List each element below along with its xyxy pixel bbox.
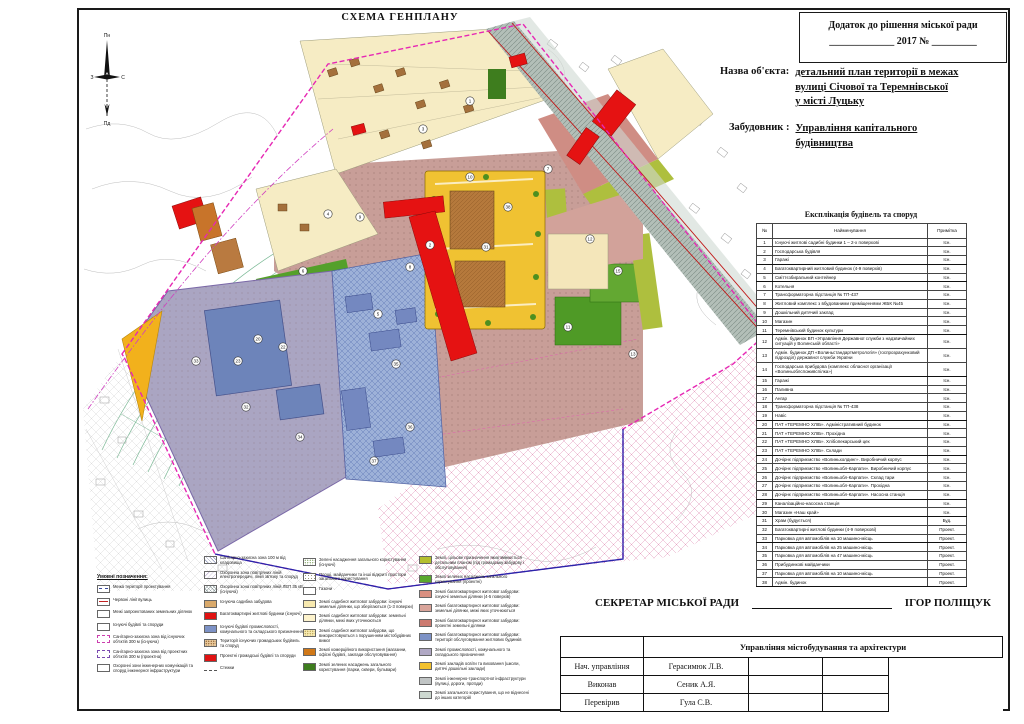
svg-text:13: 13	[630, 352, 636, 357]
explication-row: 37Парковка для автомобілів на 10 машино-…	[757, 569, 967, 578]
explication-row: 4Багатоквартирний житловий будинок (4-9 …	[757, 264, 967, 273]
explication-row: 10МагазинІсн.	[757, 317, 967, 326]
legend-swatch-dots-grn	[303, 558, 316, 566]
legend-swatch-olive	[419, 556, 432, 564]
explication-row: 29Каналізаційно-насосна станціяІсн.	[757, 499, 967, 508]
explication-row: 12Адмін. будинок ВП «Управління Державно…	[757, 335, 967, 349]
secretary-signature-row: СЕКРЕТАР МІСЬКОЇ РАДИ ІГОР ПОЛІЩУК	[595, 596, 991, 609]
legend-label: Площі, майданчики та інші відкриті прост…	[319, 573, 417, 583]
legend-label: Землі зелених насаджень загального корис…	[435, 575, 529, 585]
legend-label: Газони	[319, 587, 332, 592]
legend-label: Землі садибної житлової забудови, що вик…	[319, 629, 417, 644]
stamp-role: Нач. управління	[561, 658, 644, 676]
svg-text:20: 20	[255, 337, 261, 342]
legend-swatch-tan-dots	[204, 639, 217, 647]
legend-label: Землі, цільове призначення яких змінюєть…	[435, 556, 529, 571]
legend-label: Землі багатоквартирної житлової забудови…	[435, 604, 529, 614]
legend-label: Санітарно-захисна зона 100 м від кладови…	[220, 556, 303, 566]
explication-row: 14Господарська прибудова (комплекс облас…	[757, 362, 967, 376]
stamp-empty	[823, 694, 889, 712]
legend-label: Землі багатоквартирної житлової забудови…	[435, 619, 529, 629]
stamp-empty	[749, 676, 823, 694]
explication-row: 32Багатоквартирні житлові будинки (4-9 п…	[757, 525, 967, 534]
stamp-person-name: Герасимюк Л.В.	[644, 658, 749, 676]
legend-swatch-green	[419, 575, 432, 583]
legend-swatch-hx	[204, 556, 217, 564]
svg-text:35: 35	[393, 362, 399, 367]
legend-label: Червоні лінії вулиць	[113, 598, 152, 603]
legend-swatch-hx2	[204, 585, 217, 593]
legend-item: Землі комерційного використання (магазин…	[303, 648, 417, 658]
explication-title: Експлікація будівель та споруд	[754, 210, 968, 219]
svg-text:15: 15	[615, 269, 621, 274]
legend-swatch-line-red	[97, 598, 110, 606]
legend-label: Багатоквартирні житлові будинки (існуючі…	[220, 612, 302, 617]
explication-row: 23ПАТ «ТЕРЕМНО ХЛІБ». СкладиІсн.	[757, 446, 967, 455]
legend-item: Санітарно-захисна зона від існуючих об'є…	[97, 635, 200, 645]
explication-header-row: № Найменування Примітка	[757, 224, 967, 239]
legend-label: Території існуючих громадських будівель …	[220, 639, 303, 649]
svg-text:31: 31	[483, 245, 489, 250]
svg-text:22: 22	[280, 345, 286, 350]
explication-row: 8Житловий комплекс з вбудованими приміще…	[757, 299, 967, 308]
legend-swatch-lav	[419, 648, 432, 656]
annex-line-1: Додаток до рішення міської ради	[800, 18, 1006, 34]
explication-row: 5Сміттєзбиральний контейнерІсн.	[757, 273, 967, 282]
explication-row: 25Дочірнє підприємство «Волиньобл-Карпат…	[757, 464, 967, 473]
legend-label: Охоронна зона повітряних ліній електропе…	[220, 571, 303, 581]
compass-south-label: Пд	[104, 121, 111, 126]
stamp-person-name: Сеник А.Я.	[644, 676, 749, 694]
legend-column-3: Зелені насадження загального користуванн…	[303, 558, 417, 677]
stamp-row: Нач. управлінняГерасимюк Л.В.	[561, 658, 1003, 676]
compass-north-label: Пн	[104, 33, 111, 39]
explication-row: 28Дочірнє підприємство «Волиньобл-Карпат…	[757, 490, 967, 499]
legend-swatch-gray	[419, 677, 432, 685]
svg-text:10: 10	[467, 175, 473, 180]
legend-item: Землі промисловості, комунального та скл…	[419, 648, 529, 658]
stamp-role: Перевірив	[561, 694, 644, 712]
legend-item: Проектні громадські будівлі та споруди	[204, 654, 303, 662]
legend-label: Землі комерційного використання (магазин…	[319, 648, 417, 658]
developer-value: Управління капітальногобудівництва	[795, 122, 917, 151]
legend-label: Межа території проектування	[113, 585, 170, 590]
legend-item: Зелені насадження загального користуванн…	[303, 558, 417, 568]
legend-label: Охоронна зона повітряних ліній ЛЕП 35 кВ…	[220, 585, 303, 595]
explication-row: 6КотельняІсн.	[757, 282, 967, 291]
legend-swatch-white	[303, 587, 316, 595]
legend-label: Землі багатоквартирної житлової забудови…	[435, 590, 529, 600]
legend-label: Землі садибної житлової забудови: земель…	[319, 614, 417, 624]
explication-row: 21ПАТ «ТЕРЕМНО ХЛІБ». ПрохіднаІсн.	[757, 429, 967, 438]
explication-row: 13Адмін. будинок ДП «Волиньстандартметро…	[757, 348, 967, 362]
legend-item: Землі зелених насаджень загального корис…	[419, 575, 529, 585]
object-name-block: Назва об'єкта: детальний план території …	[720, 66, 1010, 110]
legend-item: Червоні лінії вулиць	[97, 598, 200, 606]
legend-swatch-salmon	[419, 590, 432, 598]
legend-swatch-line-blue	[97, 585, 110, 593]
stamp-empty	[823, 658, 889, 676]
svg-text:23: 23	[235, 359, 241, 364]
legend-label: Існуючі будівлі та споруди	[113, 623, 163, 628]
legend-label: Землі зелених насаджень загального корис…	[319, 663, 417, 673]
legend-item: Межі запроектованих земельних ділянок	[97, 610, 200, 618]
explication-row: 16ПаливнаІсн.	[757, 385, 967, 394]
legend-item: Площі, майданчики та інші відкриті прост…	[303, 573, 417, 583]
legend-swatch-gold	[419, 662, 432, 670]
legend-swatch-white	[97, 610, 110, 618]
legend-item: Землі садибної житлової забудови, що вик…	[303, 629, 417, 644]
developer-label: Забудовник :	[729, 122, 789, 151]
svg-text:12: 12	[587, 237, 593, 242]
explication-col-note: Примітка	[928, 224, 967, 239]
legend-swatch-py2	[303, 614, 316, 622]
legend-item: Землі зелених насаджень загального корис…	[303, 663, 417, 673]
legend-item: Межа території проектування	[97, 585, 200, 593]
legend-swatch-dkgreen	[303, 663, 316, 671]
legend-item: Охоронна зона повітряних ліній ЛЕП 35 кВ…	[204, 585, 303, 595]
stamp-empty	[749, 658, 823, 676]
explication-row: 19НавісІсн.	[757, 411, 967, 420]
legend-item: Землі загального користування, що не від…	[419, 691, 529, 701]
explication-row: 9Дошкільний дитячий закладІсн.	[757, 308, 967, 317]
legend-label: Зелені насадження загального користуванн…	[319, 558, 417, 568]
explication-table: № Найменування Примітка 1Існуючі житлові…	[756, 223, 967, 587]
explication-row: 11Теремнівський будинок культуриІсн.	[757, 326, 967, 335]
legend-label: Охоронні зони інженерних комунікацій та …	[113, 664, 200, 674]
legend-label: Стежки	[220, 666, 234, 671]
legend-swatch-graygreen	[419, 691, 432, 699]
legend-item: Землі багатоквартирної житлової забудови…	[419, 619, 529, 629]
legend-label: Землі промисловості, комунального та скл…	[435, 648, 529, 658]
legend-label: Землі інженерно-транспортної інфраструкт…	[435, 677, 529, 687]
explication-row: 15ГаражіІсн.	[757, 376, 967, 385]
legend-label: Землі багатоквартирної житлової забудови…	[435, 633, 529, 643]
legend-swatch-py-dots	[303, 629, 316, 637]
explication-row: 38Адмін. будинокПроект.	[757, 578, 967, 587]
legend-swatch-dash-mag	[97, 635, 110, 643]
svg-text:32: 32	[243, 405, 249, 410]
svg-text:37: 37	[371, 459, 377, 464]
explication-row: 17АнгарІсн.	[757, 394, 967, 403]
legend-item: Охоронна зона повітряних ліній електропе…	[204, 571, 303, 581]
legend-item: Багатоквартирні житлові будинки (існуючі…	[204, 612, 303, 620]
legend-swatch-orange	[303, 648, 316, 656]
legend-swatch-dashes	[204, 666, 217, 674]
legend-item: Газони	[303, 587, 417, 595]
legend-swatch-py	[303, 600, 316, 608]
legend-item: Землі садибної житлової забудови: земель…	[303, 614, 417, 624]
legend-item: Санітарно-захисна зона від проектних об'…	[97, 650, 200, 660]
signature-line	[752, 596, 892, 609]
legend-swatch-pink	[419, 604, 432, 612]
legend-label: Існуюча садибна забудова	[220, 600, 272, 605]
legend-label: Землі загального користування, що не від…	[435, 691, 529, 701]
legend-swatch-white	[97, 623, 110, 631]
object-name-value: детальний план території в межахвулиці С…	[795, 66, 958, 110]
legend-column-4: Землі, цільове призначення яких змінюєть…	[419, 556, 529, 706]
explication-row: 18Трансформаторна підстанція № ТП-438Існ…	[757, 403, 967, 412]
legend-label: Межі запроектованих земельних ділянок	[113, 610, 192, 615]
explication-row: 27Дочірнє підприємство «Волиньобл-Карпат…	[757, 482, 967, 491]
legend-label: Землі садибної житлової забудови: існуюч…	[319, 600, 417, 610]
legend-column-2: Санітарно-захисна зона 100 м від кладови…	[204, 556, 303, 679]
legend-label: Проектні громадські будівлі та споруди	[220, 654, 296, 659]
legend-label: Землі закладів освіти та виховання (школ…	[435, 662, 529, 672]
legend-label: Санітарно-захисна зона від проектних об'…	[113, 650, 200, 660]
explication-row: 34Парковка для автомобілів на 25 машино-…	[757, 543, 967, 552]
explication-row: 30Магазин «Наш край»Існ.	[757, 508, 967, 517]
legend-label: Існуючі будівлі промисловості, комунальн…	[220, 625, 303, 635]
legend-swatch-tan	[204, 600, 217, 608]
explication-row: 35Парковка для автомобілів на 47 машино-…	[757, 552, 967, 561]
legend-swatch-blue	[419, 633, 432, 641]
svg-text:11: 11	[566, 325, 571, 330]
legend-item: Існуючі будівлі промисловості, комунальн…	[204, 625, 303, 635]
developer-block: Забудовник : Управління капітальногобуді…	[729, 122, 1010, 151]
legend-item: Землі, цільове призначення яких змінюєть…	[419, 556, 529, 571]
legend-swatch-rose	[419, 619, 432, 627]
secretary-name: ІГОР ПОЛІЩУК	[905, 597, 991, 609]
explication-col-name: Найменування	[773, 224, 928, 239]
explication-row: 1Існуючі житлові садибні будинки 1 – 2-х…	[757, 238, 967, 247]
legend-label: Санітарно-захисна зона від існуючих об'є…	[113, 635, 200, 645]
legend-item: Землі інженерно-транспортної інфраструкт…	[419, 677, 529, 687]
stamp-row: ВиконавСеник А.Я.	[561, 676, 1003, 694]
stamp-row: ПеревіривГула С.В.	[561, 694, 1003, 712]
explication-row: 33Парковка для автомобілів на 10 машино-…	[757, 534, 967, 543]
legend-swatch-red	[204, 612, 217, 620]
explication-row: 2Господарська будівляІсн.	[757, 247, 967, 256]
explication-row: 36Прибудинкові майданчикиПроект.	[757, 560, 967, 569]
svg-text:33: 33	[193, 359, 199, 364]
legend-item: Землі садибної житлової забудови: існуюч…	[303, 600, 417, 610]
legend-swatch-white	[97, 664, 110, 672]
legend-item: Охоронні зони інженерних комунікацій та …	[97, 664, 200, 674]
stamp-empty-cell	[561, 637, 644, 658]
secretary-label: СЕКРЕТАР МІСЬКОЇ РАДИ	[595, 597, 739, 609]
annex-box: Додаток до рішення міської ради ________…	[799, 12, 1007, 63]
legend-item: Стежки	[204, 666, 303, 674]
legend-swatch-blue2	[204, 625, 217, 633]
legend-item: Землі багатоквартирної житлової забудови…	[419, 604, 529, 614]
explication-col-number: №	[757, 224, 773, 239]
explication-row: 26Дочірнє підприємство «Волиньобл-Карпат…	[757, 473, 967, 482]
genplan-sheet: 1346910383128712155202223333234353637111…	[0, 0, 1024, 724]
explication-row: 7Трансформаторна підстанція № ТП-437Існ.	[757, 291, 967, 300]
explication-row: 24Дочірнє підприємство «Волиньхолдинг». …	[757, 455, 967, 464]
stamp-title: Управління містобудування та архітектури	[644, 637, 1003, 658]
stamp-role: Виконав	[561, 676, 644, 694]
page-title: СХЕМА ГЕНПЛАНУ	[305, 12, 495, 23]
legend-item: Території існуючих громадських будівель …	[204, 639, 303, 649]
stamp-table: Управління містобудування та архітектури…	[560, 636, 1003, 712]
explication-row: 3ГаражіІсн.	[757, 256, 967, 265]
stamp-empty	[749, 694, 823, 712]
stamp-empty	[823, 676, 889, 694]
legend-item: Землі закладів освіти та виховання (школ…	[419, 662, 529, 672]
legend-item: Землі багатоквартирної житлової забудови…	[419, 590, 529, 600]
legend-item: Санітарно-захисна зона 100 м від кладови…	[204, 556, 303, 566]
legend-swatch-red2	[204, 654, 217, 662]
legend-swatch-hl	[204, 571, 217, 579]
legend-item: Існуюча садибна забудова	[204, 600, 303, 608]
annex-line-2: _____________ 2017 № _________	[800, 34, 1006, 50]
stamp-person-name: Гула С.В.	[644, 694, 749, 712]
explication-row: 22ПАТ «ТЕРЕМНО ХЛІБ». Хлібопекарський це…	[757, 438, 967, 447]
compass-west-label: З	[90, 75, 93, 81]
legend-column-1: Умовні позначення:Межа території проекту…	[97, 574, 200, 679]
genplan-map: 1346910383128712155202223333234353637111…	[78, 9, 768, 591]
legend-swatch-dots-grn2	[303, 573, 316, 581]
object-name-label: Назва об'єкта:	[720, 66, 789, 110]
legend-header: Умовні позначення:	[97, 574, 200, 580]
explication-row: 20ПАТ «ТЕРЕМНО ХЛІБ». Адміністративний б…	[757, 420, 967, 429]
legend-item: Землі багатоквартирної житлової забудови…	[419, 633, 529, 643]
compass-east-label: С	[121, 75, 125, 81]
explication-row: 31Храм (будується)Буд.	[757, 517, 967, 526]
svg-text:36: 36	[407, 425, 413, 430]
legend-swatch-dash-pur	[97, 650, 110, 658]
svg-text:38: 38	[505, 205, 511, 210]
svg-text:34: 34	[297, 435, 303, 440]
legend-item: Існуючі будівлі та споруди	[97, 623, 200, 631]
compass-rose-icon: Пн Пд З С	[88, 30, 126, 126]
